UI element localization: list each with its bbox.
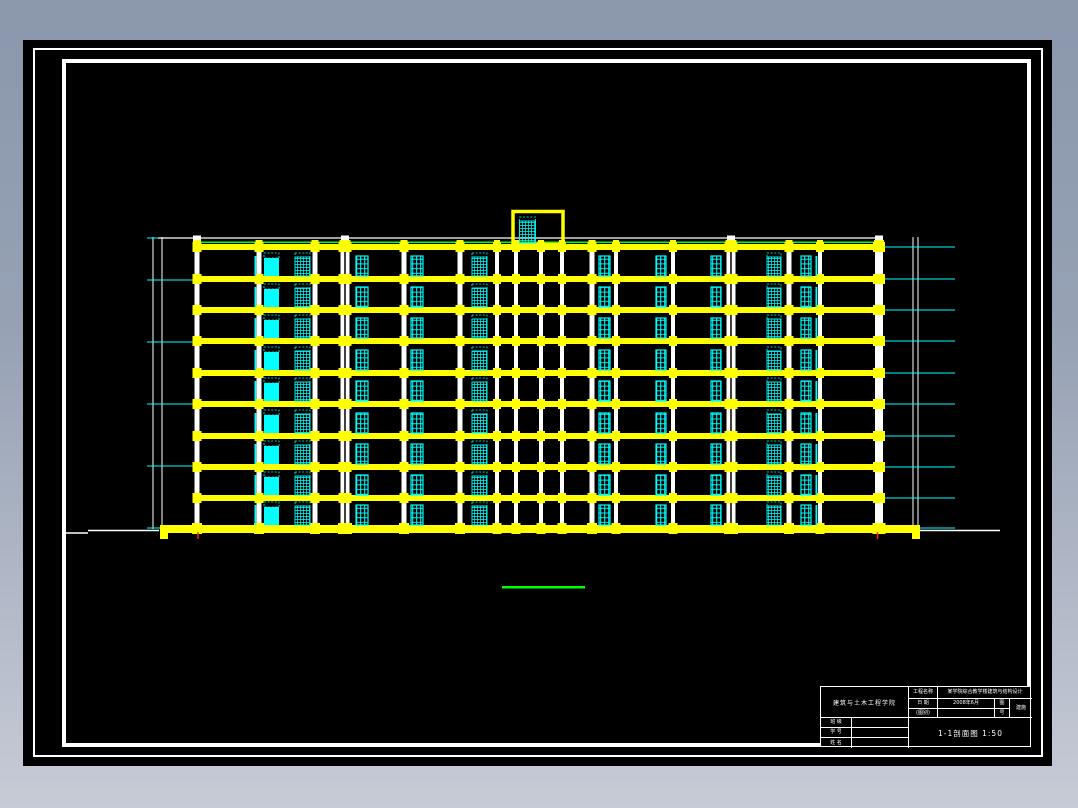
title-block-name-value bbox=[851, 737, 908, 748]
title-block-date-value: 2008年6月 bbox=[937, 698, 994, 708]
title-block-class-label: 班 级 bbox=[821, 717, 851, 727]
title-block-category-value bbox=[937, 708, 994, 717]
title-block-class-value bbox=[851, 717, 908, 727]
title-block-drawing-title: 1-1剖面图 1:50 bbox=[908, 717, 1032, 748]
title-block-number-value bbox=[851, 727, 908, 737]
title-block-college: 建筑与土木工程学院 bbox=[821, 687, 908, 717]
ground-lines bbox=[66, 531, 1000, 589]
title-block-hao-label: 号 bbox=[994, 708, 1009, 717]
title-block-tu-label: 图 bbox=[994, 698, 1009, 708]
cad-viewer-background: 建筑与土木工程学院 工程名称 某学院综合教学楼建筑与结构设计 日 期 2008年… bbox=[0, 0, 1078, 808]
penthouse bbox=[513, 212, 563, 245]
title-block-name-label: 姓 名 bbox=[821, 737, 851, 748]
title-block-project-value: 某学院综合教学楼建筑与结构设计 bbox=[937, 687, 1032, 698]
title-block-project-label: 工程名称 bbox=[908, 687, 937, 698]
title-block: 建筑与土木工程学院 工程名称 某学院综合教学楼建筑与结构设计 日 期 2008年… bbox=[820, 686, 1031, 747]
title-block-date-label: 日 期 bbox=[908, 698, 937, 708]
title-block-scale-cell: 建施 bbox=[1009, 698, 1032, 717]
title-block-number-label: 学 号 bbox=[821, 727, 851, 737]
title-block-category-label: (图别) bbox=[908, 708, 937, 717]
